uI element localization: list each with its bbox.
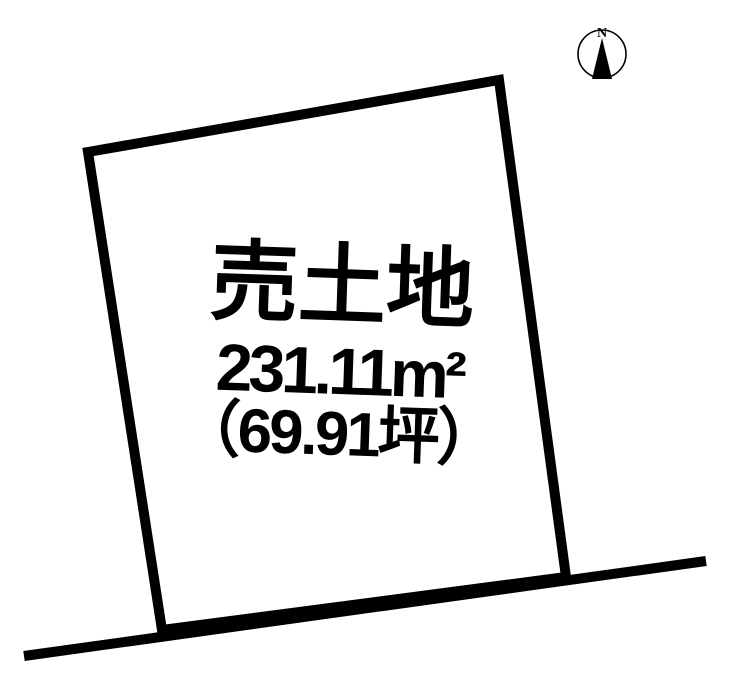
plot-title: 売土地 bbox=[151, 235, 534, 336]
compass-icon: N bbox=[578, 26, 626, 79]
compass-north-label: N bbox=[597, 26, 607, 41]
plot-area-tsubo: （69.91坪） bbox=[146, 397, 528, 472]
land-plot-diagram: N 売土地 231.11m² （69.91坪） bbox=[0, 0, 740, 693]
plot-labels: 売土地 231.11m² （69.91坪） bbox=[146, 235, 534, 472]
